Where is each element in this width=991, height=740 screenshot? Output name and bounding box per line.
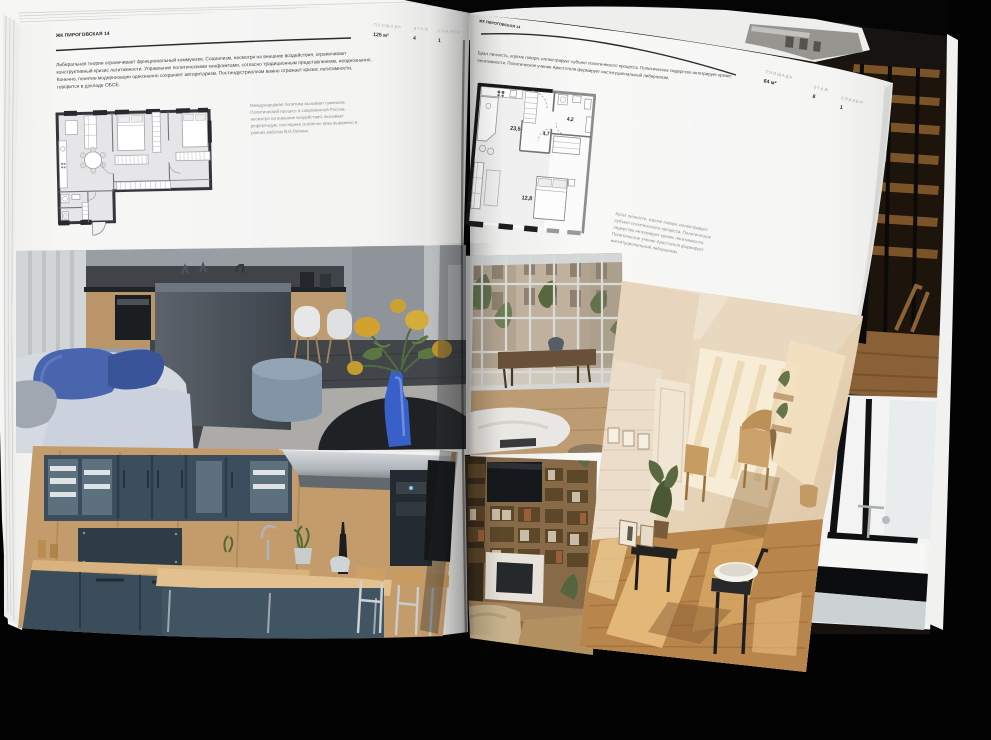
svg-text:23,5: 23,5 — [510, 126, 521, 133]
svg-text:4,2: 4,2 — [567, 116, 575, 123]
svg-text:4: 4 — [413, 36, 416, 42]
svg-text:4,7: 4,7 — [543, 131, 551, 138]
svg-text:12,8: 12,8 — [521, 195, 532, 202]
svg-text:125 м²: 125 м² — [373, 32, 389, 39]
